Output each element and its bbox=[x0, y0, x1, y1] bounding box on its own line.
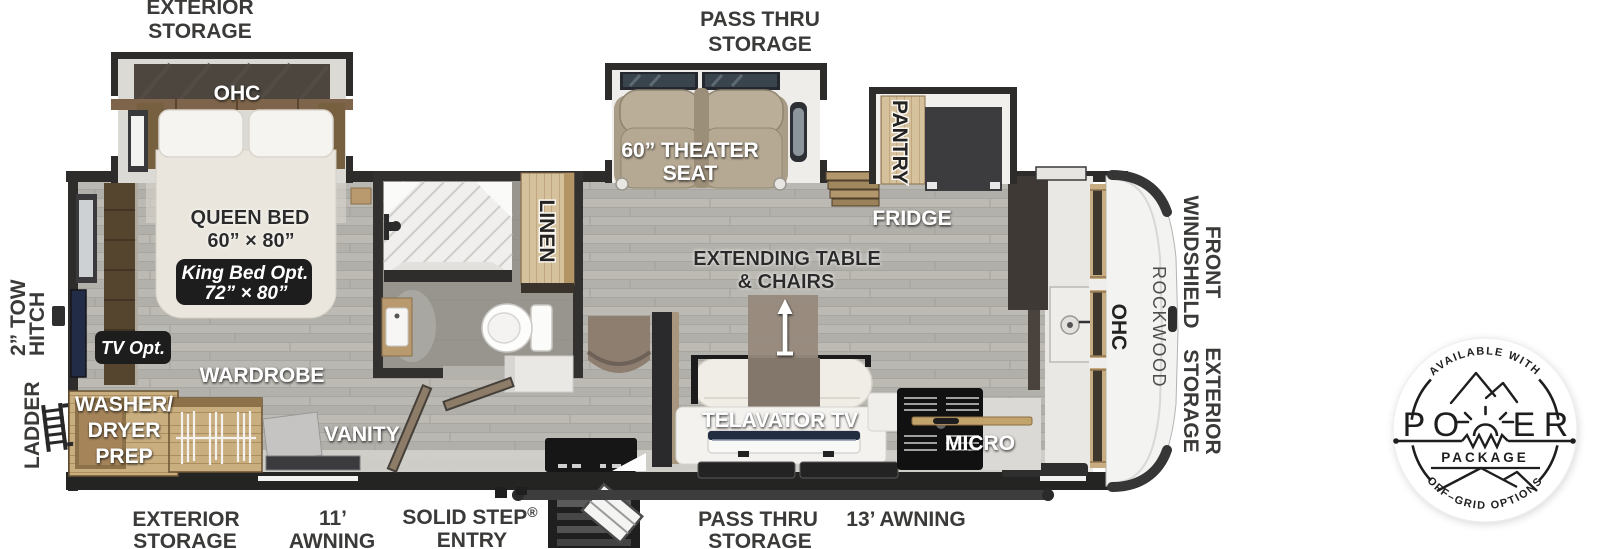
svg-text:11’: 11’ bbox=[319, 507, 347, 530]
svg-text:MICRO: MICRO bbox=[945, 432, 1015, 455]
svg-text:STORAGE: STORAGE bbox=[708, 33, 811, 56]
svg-text:P: P bbox=[1403, 406, 1426, 444]
svg-text:STORAGE: STORAGE bbox=[148, 20, 251, 43]
svg-text:King Bed Opt.: King Bed Opt. bbox=[182, 263, 309, 284]
svg-text:AWNING: AWNING bbox=[289, 530, 375, 549]
svg-text:EXTENDING TABLE: EXTENDING TABLE bbox=[693, 248, 880, 270]
svg-text:PREP: PREP bbox=[95, 445, 152, 468]
svg-text:ROCKWOOD: ROCKWOOD bbox=[1149, 266, 1169, 388]
svg-text:STORAGE: STORAGE bbox=[708, 530, 811, 549]
svg-text:TELAVATOR TV: TELAVATOR TV bbox=[702, 409, 858, 432]
svg-text:WARDROBE: WARDROBE bbox=[200, 364, 325, 387]
svg-text:VANITY: VANITY bbox=[324, 423, 399, 446]
svg-text:R: R bbox=[1544, 406, 1569, 444]
svg-text:60” × 80”: 60” × 80” bbox=[207, 230, 294, 252]
svg-text:STORAGE: STORAGE bbox=[1179, 349, 1202, 452]
svg-text:SEAT: SEAT bbox=[663, 162, 718, 185]
svg-text:LINEN: LINEN bbox=[535, 200, 558, 263]
svg-text:72” × 80”: 72” × 80” bbox=[205, 283, 288, 304]
svg-text:OHC: OHC bbox=[1107, 304, 1130, 351]
svg-text:TV Opt.: TV Opt. bbox=[101, 338, 165, 358]
svg-text:O: O bbox=[1433, 406, 1459, 444]
svg-text:PASS THRU: PASS THRU bbox=[698, 508, 818, 531]
svg-text:FRONT: FRONT bbox=[1201, 226, 1224, 298]
svg-text:PASS THRU: PASS THRU bbox=[700, 8, 820, 31]
svg-text:EXTERIOR: EXTERIOR bbox=[1201, 347, 1224, 454]
svg-text:PACKAGE: PACKAGE bbox=[1441, 450, 1529, 465]
svg-text:SOLID STEP®: SOLID STEP® bbox=[402, 504, 538, 529]
svg-text:HITCH: HITCH bbox=[26, 292, 49, 356]
svg-text:QUEEN BED: QUEEN BED bbox=[191, 207, 310, 229]
svg-text:60” THEATER: 60” THEATER bbox=[621, 139, 758, 162]
svg-text:13’ AWNING: 13’ AWNING bbox=[846, 508, 965, 531]
svg-text:EXTERIOR: EXTERIOR bbox=[132, 508, 239, 531]
svg-text:EXTERIOR: EXTERIOR bbox=[146, 0, 253, 19]
svg-text:WINDSHIELD: WINDSHIELD bbox=[1179, 196, 1202, 329]
svg-text:DRYER: DRYER bbox=[88, 419, 161, 442]
svg-text:LADDER: LADDER bbox=[21, 382, 44, 470]
svg-text:WASHER/: WASHER/ bbox=[75, 393, 173, 416]
svg-text:FRIDGE: FRIDGE bbox=[872, 207, 951, 230]
svg-text:E: E bbox=[1513, 406, 1536, 444]
svg-text:& CHAIRS: & CHAIRS bbox=[738, 271, 835, 293]
svg-text:PANTRY: PANTRY bbox=[888, 100, 911, 184]
svg-text:ENTRY: ENTRY bbox=[437, 529, 507, 549]
svg-text:STORAGE: STORAGE bbox=[133, 530, 236, 549]
svg-text:OHC: OHC bbox=[214, 82, 261, 105]
